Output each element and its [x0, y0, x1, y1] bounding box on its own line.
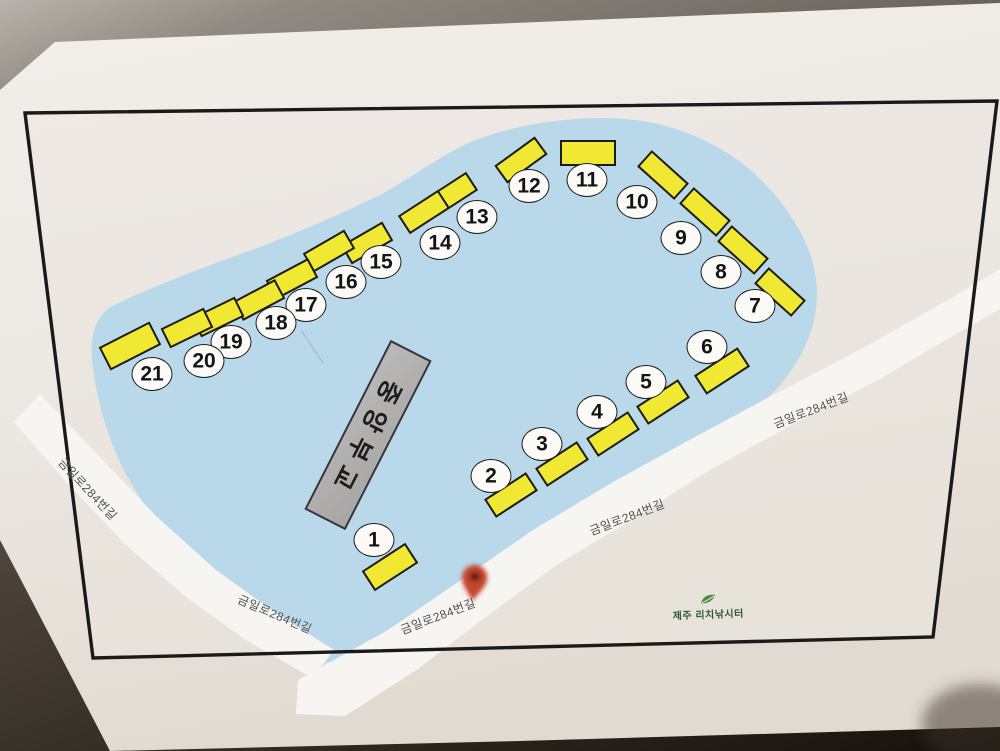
site-number-badge: 10 [617, 185, 658, 219]
site-number-badge: 4 [577, 395, 618, 429]
site-number-badge: 6 [687, 330, 728, 364]
site-number-badge: 18 [256, 306, 297, 340]
facility-logo: 제주 리치낚시터 [672, 592, 744, 622]
leaf-logo-icon [699, 593, 717, 606]
site-number: 19 [219, 331, 242, 352]
site-number-badge: 16 [326, 265, 367, 299]
site-number: 21 [140, 363, 163, 384]
site-number: 13 [465, 206, 488, 227]
site-number: 8 [715, 261, 727, 282]
site-number: 5 [640, 371, 652, 392]
site-number-badge: 21 [132, 357, 173, 391]
site-number: 4 [591, 401, 603, 422]
site-number: 7 [749, 295, 761, 316]
site-number-badge: 5 [626, 365, 667, 399]
site-number: 16 [334, 271, 357, 292]
site-number: 1 [368, 529, 380, 550]
site-number: 3 [536, 433, 548, 454]
photographed-fishing-site-map: 금일로284번길 금일로284번길 금일로284번길 금일로284번길 금일로2… [0, 0, 1000, 751]
site-number-badge: 11 [567, 163, 608, 197]
site-number-badge: 15 [361, 245, 402, 279]
site-number-badge: 12 [509, 169, 550, 203]
site-number: 11 [576, 169, 598, 190]
site-number: 14 [428, 232, 451, 253]
site-number-badge: 1 [354, 523, 395, 557]
site-number: 9 [675, 227, 687, 248]
site-number-badge: 2 [471, 459, 512, 493]
site-number-badge: 20 [184, 344, 225, 378]
site-number: 12 [517, 175, 540, 196]
site-number: 15 [369, 251, 392, 272]
site-number-badge: 8 [701, 255, 742, 289]
site-number: 20 [192, 350, 215, 371]
site-number: 6 [701, 336, 713, 357]
site-number-badge: 9 [661, 221, 702, 255]
facility-logo-text: 제주 리치낚시터 [672, 605, 744, 622]
site-number-badge: 13 [457, 200, 498, 234]
site-number: 18 [264, 312, 287, 333]
site-number: 2 [485, 465, 497, 486]
site-number: 17 [294, 294, 317, 315]
site-number: 10 [625, 191, 648, 212]
site-number-badge: 3 [522, 427, 563, 461]
site-number-badge: 7 [735, 289, 776, 323]
site-number-badge: 14 [420, 226, 461, 260]
